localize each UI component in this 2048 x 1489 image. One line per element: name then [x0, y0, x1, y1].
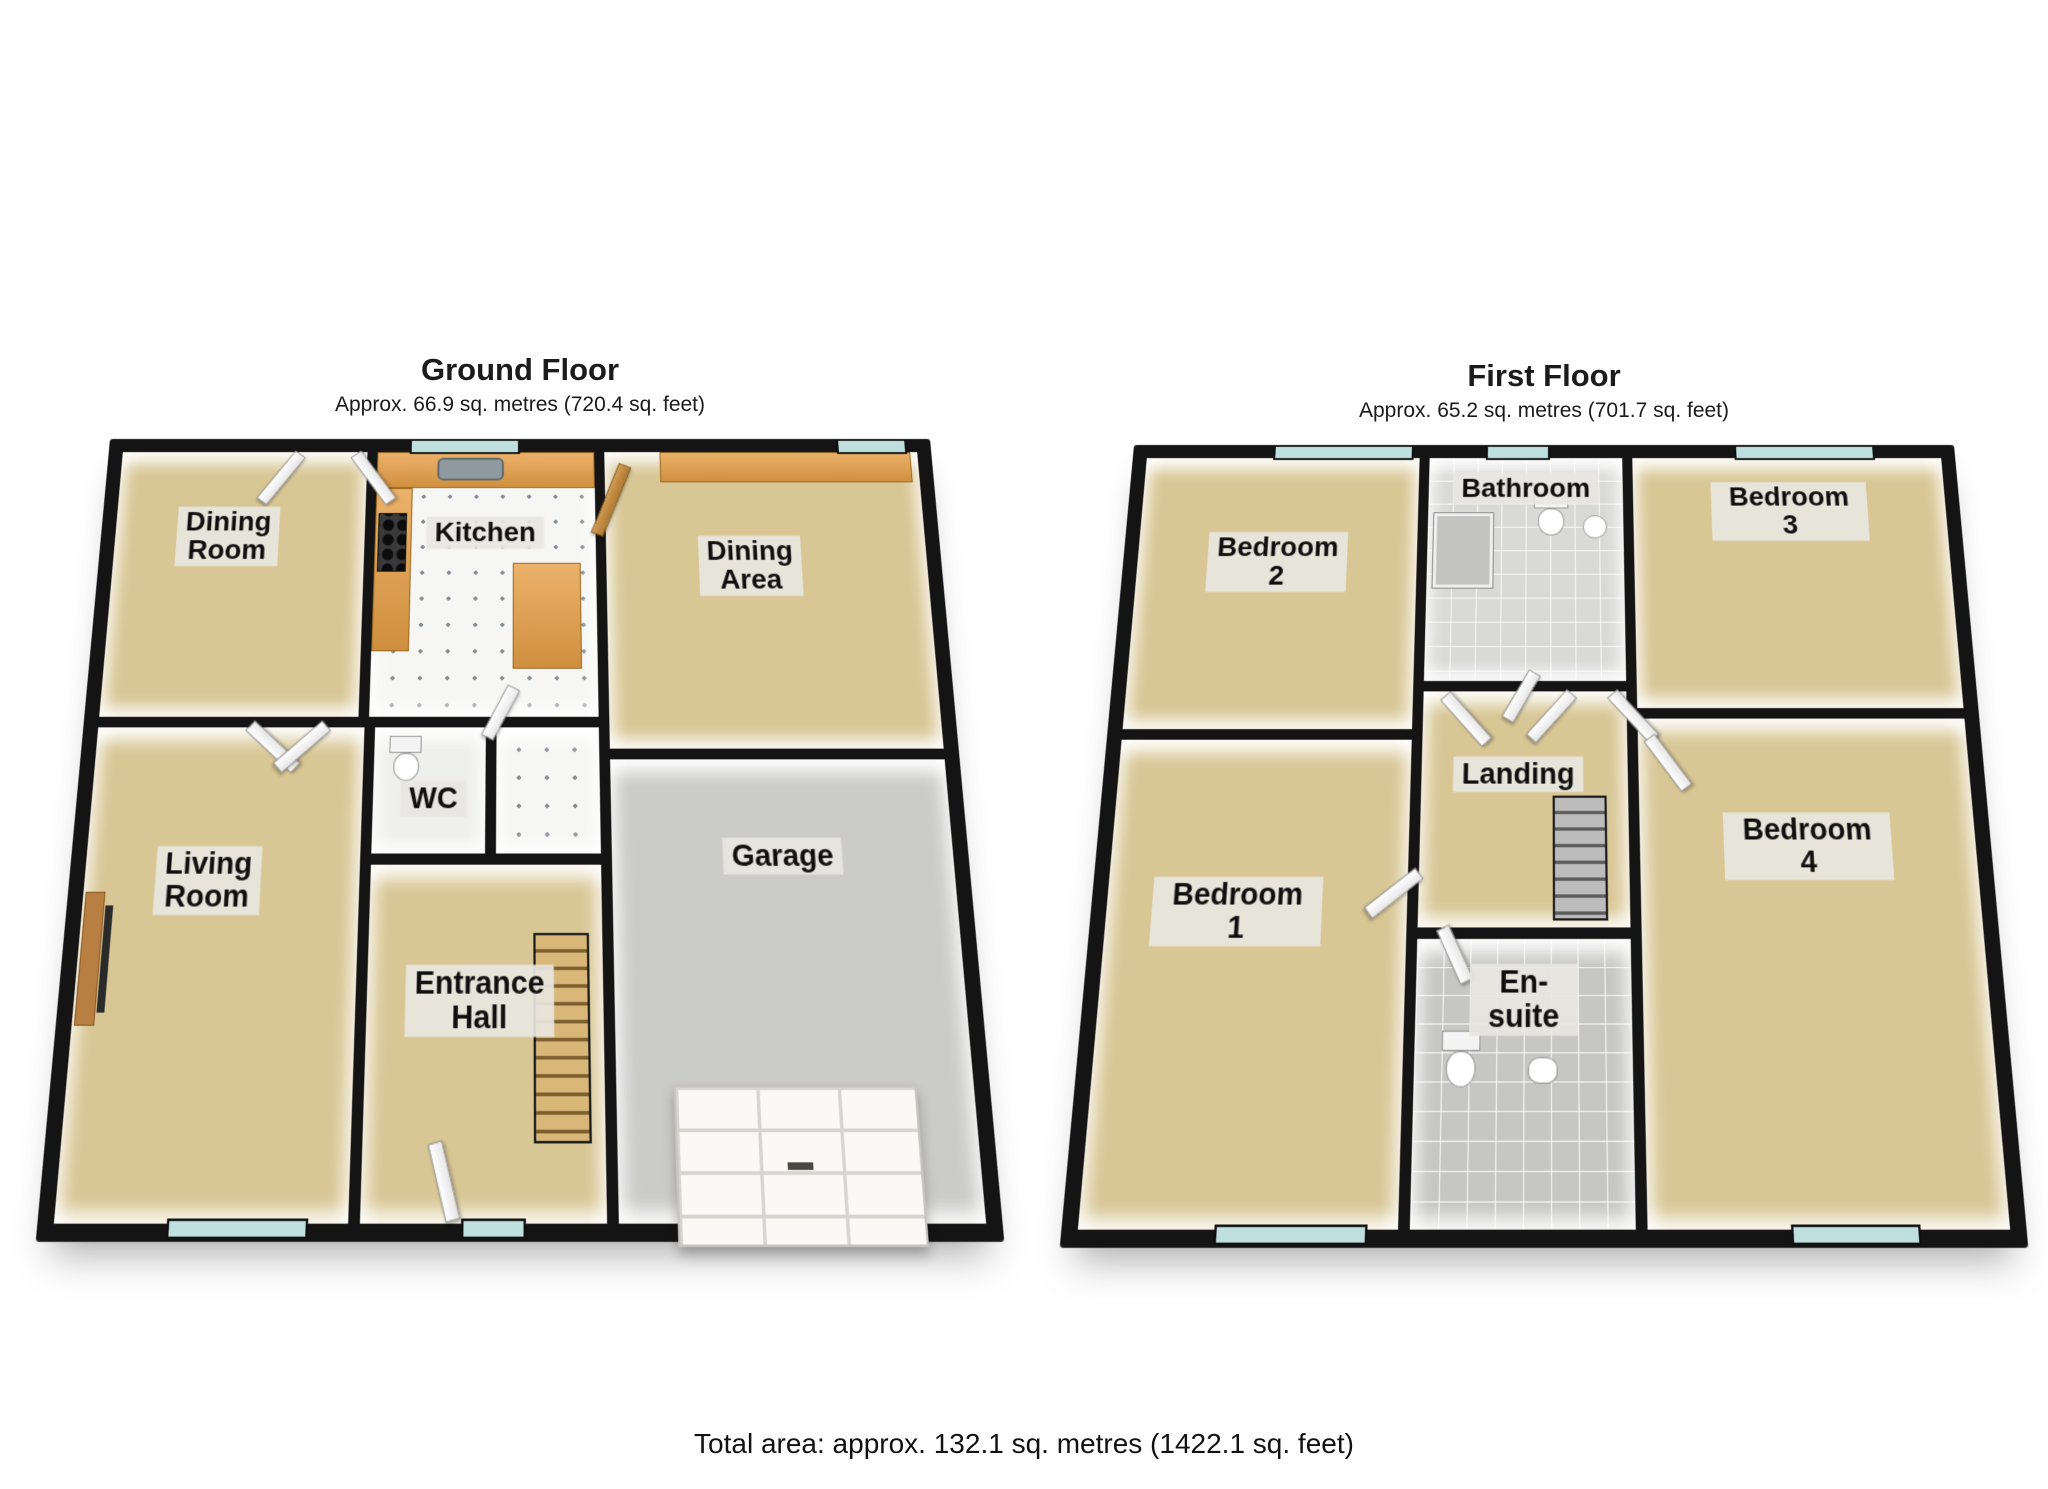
room-label-dining-room: Dining Room	[174, 507, 280, 567]
room-bedroom-2: Bedroom 2	[1123, 458, 1420, 729]
kitchen-island	[513, 563, 582, 669]
ensuite-toilet-fixture	[1446, 1051, 1476, 1087]
room-label-bedroom-4: Bedroom 4	[1723, 812, 1895, 880]
room-label-ensuite: En-suite	[1469, 964, 1578, 1036]
first-floor-section: First Floor Approx. 65.2 sq. metres (701…	[1044, 358, 2044, 1173]
room-label-living-room: Living Room	[153, 846, 262, 915]
room-label-entrance-hall: Entrance Hall	[404, 965, 553, 1038]
bathroom-sink-fixture	[1583, 515, 1608, 538]
room-bedroom-4: Bedroom 4	[1637, 719, 2010, 1230]
bathroom-toilet-fixture	[1538, 508, 1565, 535]
ground-floor-plan: Dining Room Kitchen Dining Area	[36, 439, 1005, 1242]
room-dining-area: Dining Area	[604, 452, 943, 749]
room-entrance-hall: Entrance Hall	[360, 865, 607, 1224]
window-kitchen	[410, 439, 520, 454]
room-label-kitchen: Kitchen	[426, 517, 544, 549]
ground-floor-header: Ground Floor Approx. 66.9 sq. metres (72…	[20, 352, 1020, 417]
room-kitchen: Kitchen	[369, 452, 599, 717]
room-label-wc: WC	[400, 781, 467, 817]
dining-area-counter	[659, 452, 912, 482]
ground-floor-scene: Dining Room Kitchen Dining Area	[20, 439, 1020, 1167]
ground-floor-area: Approx. 66.9 sq. metres (720.4 sq. feet)	[20, 393, 1020, 417]
staircase-landing	[1553, 796, 1609, 921]
room-living-room: Living Room	[54, 727, 365, 1223]
room-bedroom-3: Bedroom 3	[1632, 458, 1963, 708]
room-label-bedroom-3: Bedroom 3	[1710, 482, 1870, 541]
window-bedroom-3	[1734, 445, 1875, 460]
window-dining-area	[836, 439, 907, 454]
room-label-garage: Garage	[722, 838, 843, 874]
room-label-bedroom-2: Bedroom 2	[1205, 532, 1348, 592]
first-floor-plan: Bedroom 2 Bathroom Bedroom 3 Landing	[1060, 445, 2029, 1248]
total-area-text: Total area: approx. 132.1 sq. metres (14…	[0, 1428, 2048, 1460]
kitchen-sink-fixture	[437, 458, 504, 481]
first-floor-header: First Floor Approx. 65.2 sq. metres (701…	[1044, 358, 2044, 423]
room-bathroom: Bathroom	[1424, 458, 1626, 681]
window-bedroom-4	[1791, 1225, 1922, 1246]
room-dining-room: Dining Room	[99, 452, 367, 717]
wc-toilet-fixture	[393, 753, 419, 781]
first-floor-title: First Floor	[1044, 358, 2044, 394]
window-living-room	[166, 1219, 309, 1240]
room-label-dining-area: Dining Area	[698, 536, 804, 596]
room-landing: Landing	[1418, 691, 1631, 927]
room-bedroom-1: Bedroom 1	[1078, 740, 1412, 1230]
room-ensuite: En-suite	[1410, 939, 1636, 1230]
ground-floor-section: Ground Floor Approx. 66.9 sq. metres (72…	[20, 352, 1020, 1167]
window-bedroom-1	[1213, 1225, 1367, 1246]
room-label-bedroom-1: Bedroom 1	[1149, 877, 1324, 947]
ensuite-sink-fixture	[1528, 1057, 1558, 1084]
first-floor-area: Approx. 65.2 sq. metres (701.7 sq. feet)	[1044, 399, 2044, 423]
hall-nook	[496, 727, 601, 853]
shower-fixture	[1433, 513, 1494, 587]
room-label-bathroom: Bathroom	[1453, 473, 1598, 504]
garage-door-handle	[788, 1162, 814, 1170]
room-wc: WC	[371, 727, 486, 853]
window-bathroom	[1486, 445, 1550, 460]
first-floor-scene: Bedroom 2 Bathroom Bedroom 3 Landing	[1044, 445, 2044, 1173]
window-bedroom-2	[1273, 445, 1414, 460]
ground-floor-title: Ground Floor	[20, 352, 1020, 388]
room-garage: Garage	[610, 759, 986, 1223]
window-entrance	[461, 1219, 526, 1240]
wc-cistern	[389, 736, 421, 753]
room-label-landing: Landing	[1453, 756, 1583, 791]
stove-fixture	[377, 513, 407, 572]
floorplan-board: Ground Floor Approx. 66.9 sq. metres (72…	[0, 0, 2048, 1489]
